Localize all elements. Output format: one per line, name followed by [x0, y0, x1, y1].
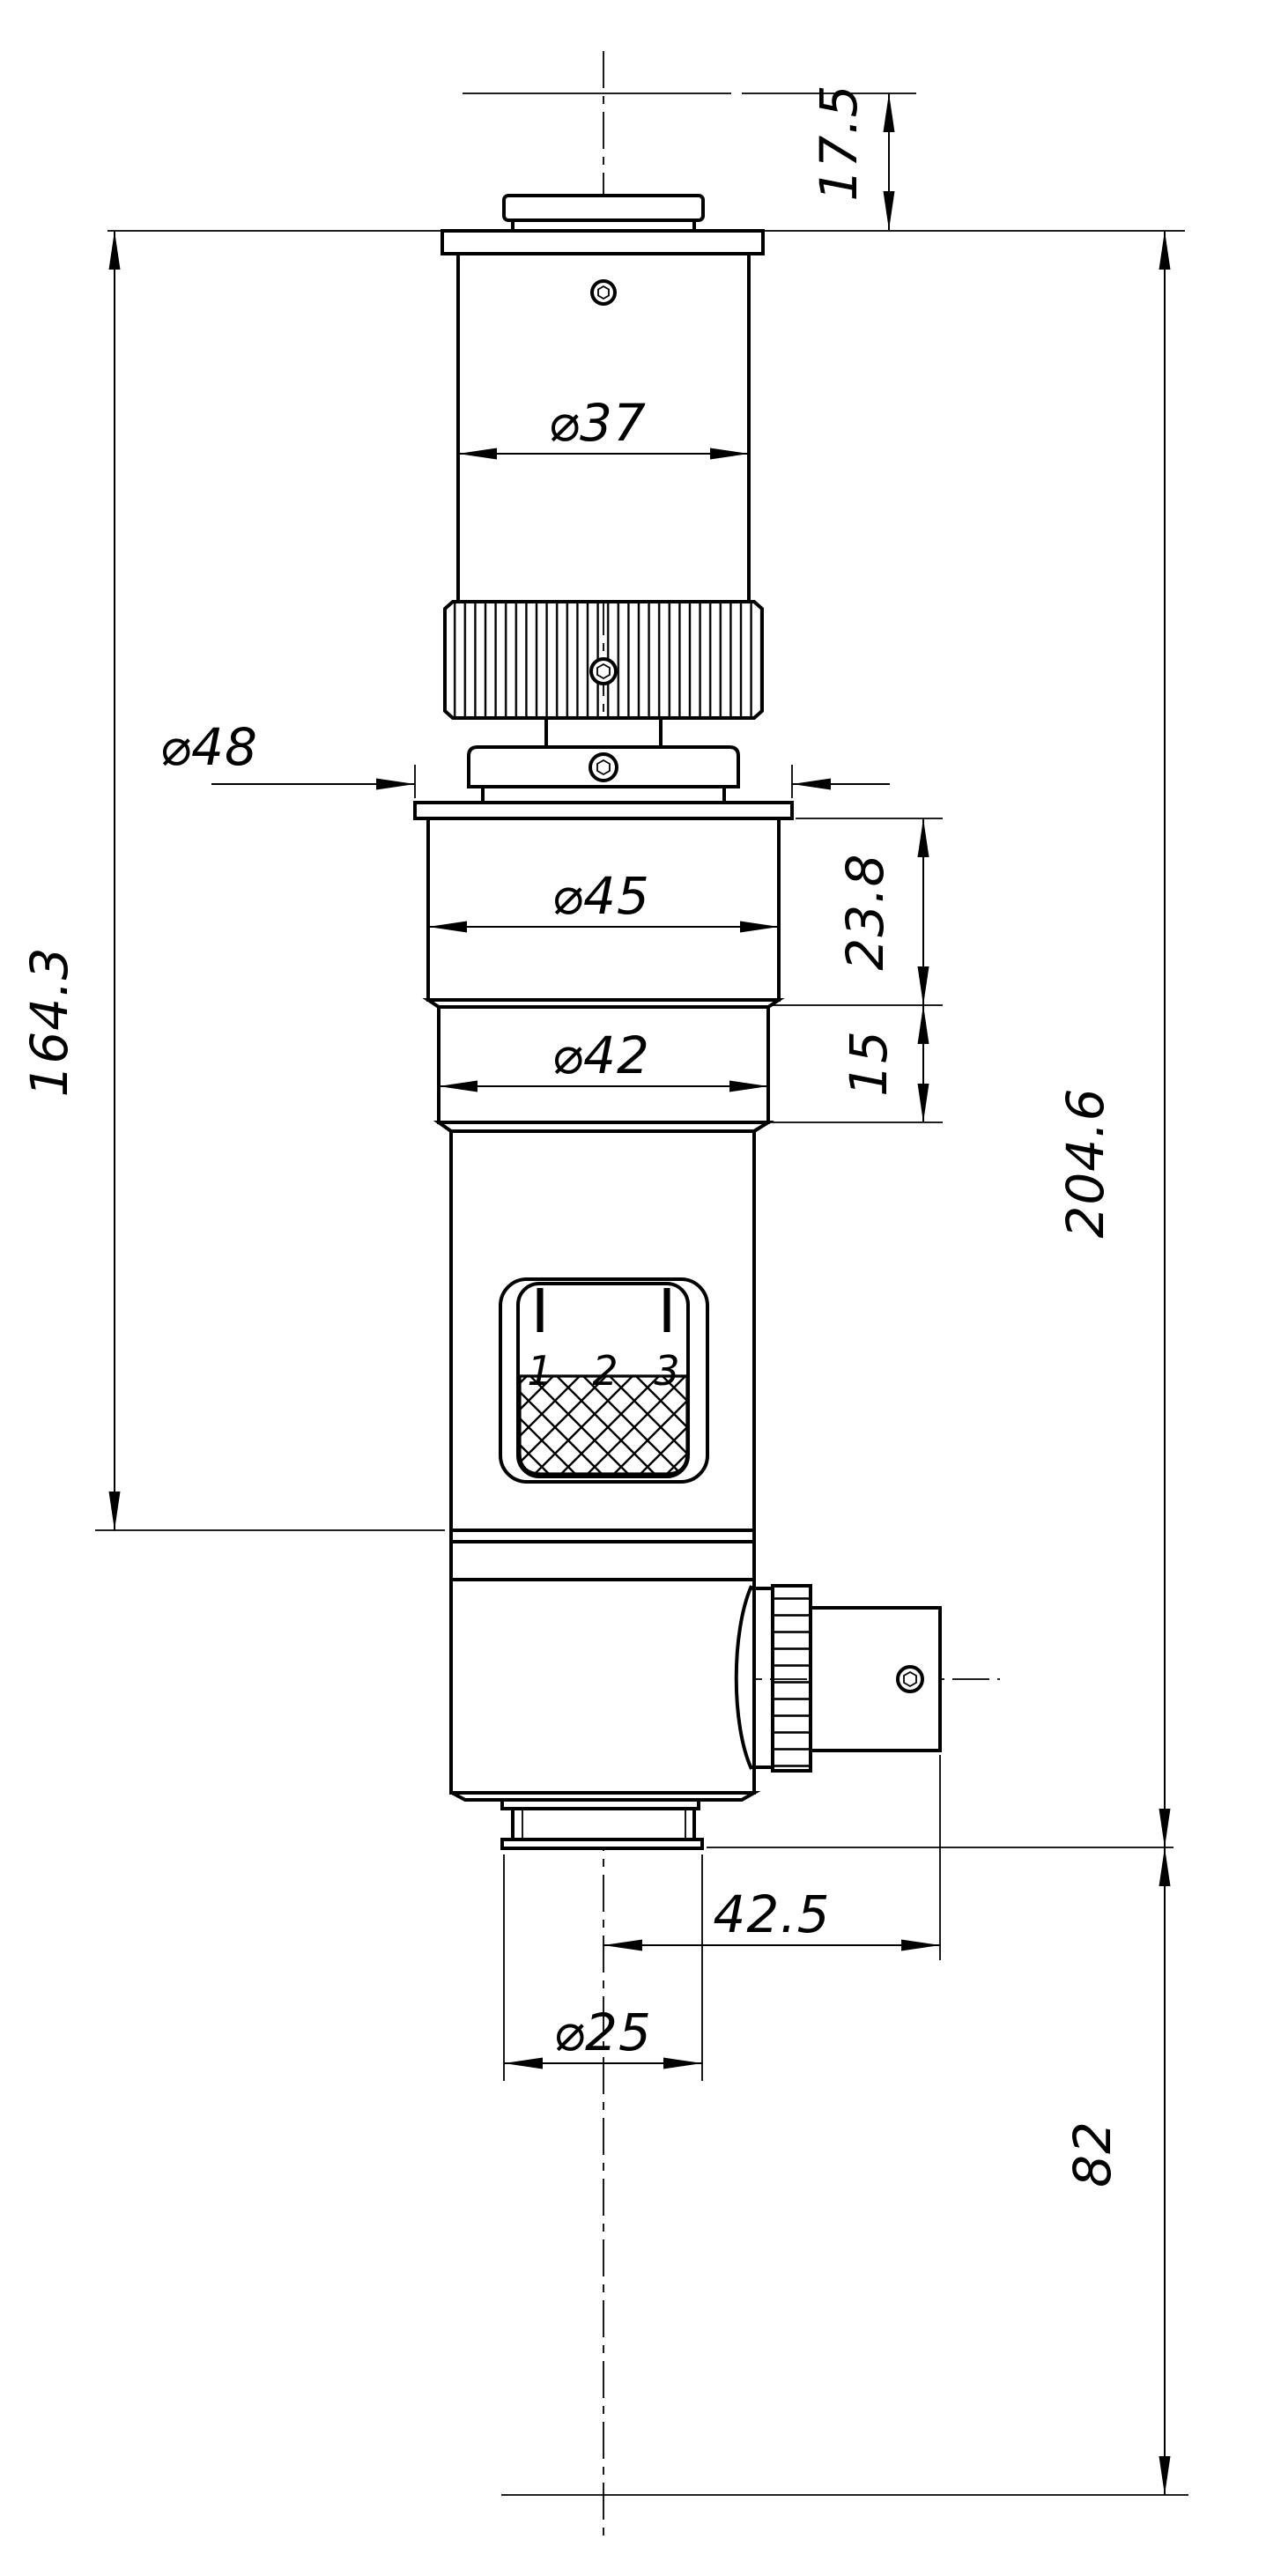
- knob-screw-icon: [898, 1667, 922, 1691]
- upper-flange: [442, 231, 763, 254]
- bottom-flange-dia25: [502, 1839, 702, 1848]
- dim-23-8: 23.8: [772, 818, 943, 1005]
- mounting-flange-dia48: [415, 803, 792, 818]
- dim-dia48-label: ⌀48: [159, 717, 258, 777]
- dim-dia25-label: ⌀25: [553, 2002, 652, 2062]
- dim-204-6-label: 204.6: [1055, 1087, 1115, 1238]
- side-knob: [737, 1586, 940, 1771]
- neck: [546, 718, 661, 747]
- dim-dia45-label: ⌀45: [552, 866, 650, 926]
- dim-204-6: 204.6: [1055, 231, 1165, 1847]
- zoom-wheel-knurl-visible: [520, 1376, 687, 1474]
- dim-164-3-label: 164.3: [19, 946, 79, 1097]
- collar-step-ring: [483, 787, 724, 803]
- part-outline: 1 2 3: [415, 196, 940, 1848]
- dim-82-label: 82: [1062, 2121, 1122, 2187]
- cmount-cylinder: [513, 1809, 694, 1839]
- dim-15-label: 15: [839, 1030, 899, 1097]
- dim-42-5-label: 42.5: [713, 1884, 830, 1944]
- technical-drawing-microscope-tube: 1 2 3 ⌀37 ⌀48: [0, 0, 1266, 2576]
- eyepiece-cap: [504, 196, 703, 220]
- dim-dia37-label: ⌀37: [548, 393, 647, 453]
- dim-15: 15: [758, 1005, 943, 1122]
- dim-164-3: 164.3: [19, 231, 115, 1530]
- drawing-sheet: 1 2 3 ⌀37 ⌀48: [0, 0, 1266, 2576]
- collar-set-screw-icon: [590, 754, 617, 781]
- dim-82: 82: [1062, 1847, 1165, 2495]
- ring-set-screw-icon: [591, 659, 616, 684]
- dim-17-5-label: 17.5: [809, 84, 869, 201]
- dim-23-8-label: 23.8: [835, 853, 895, 970]
- dim-17-5: 17.5: [809, 84, 889, 230]
- dim-dia42-label: ⌀42: [552, 1025, 650, 1085]
- knob-knurled-wheel: [773, 1586, 811, 1771]
